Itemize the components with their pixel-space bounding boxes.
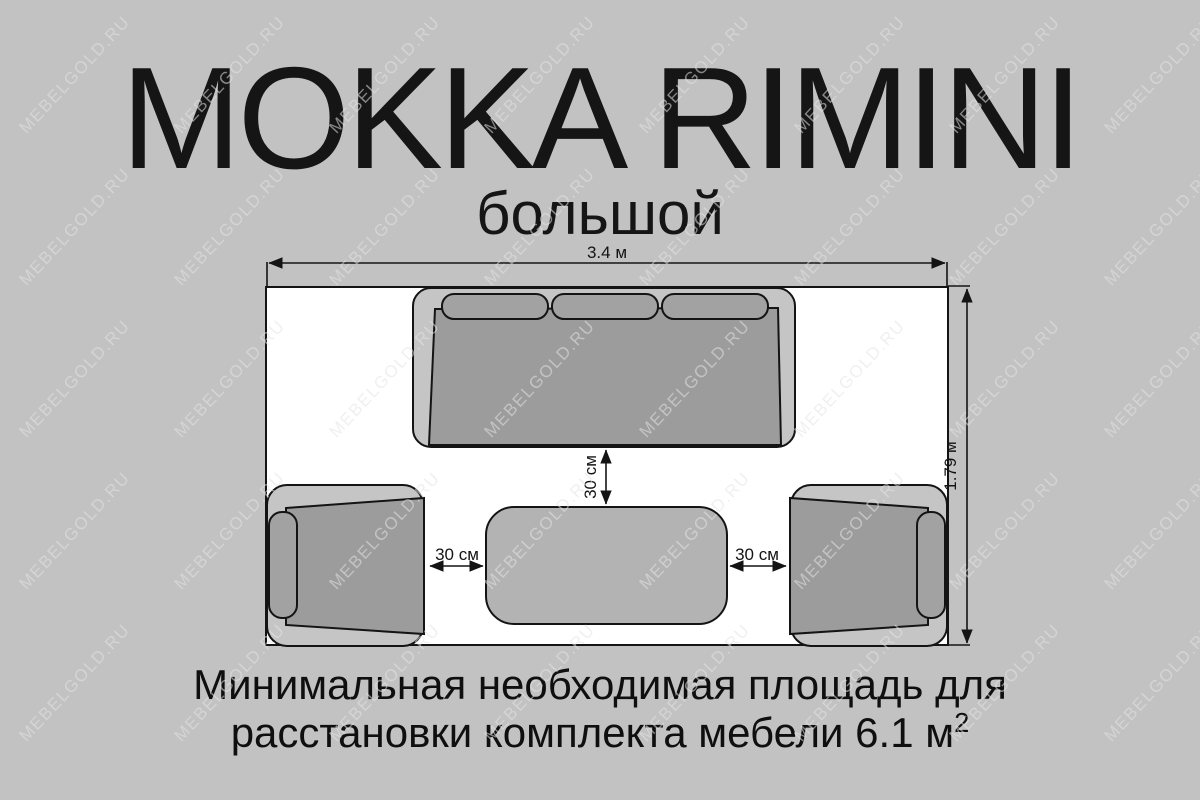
armchair-right-cushion	[917, 512, 945, 618]
left-gap-dimension: 30 см	[430, 545, 483, 566]
right-gap-dimension: 30 см	[730, 545, 786, 566]
sofa-seat	[429, 308, 781, 445]
sofa	[413, 288, 795, 447]
minimum-area-note-line2-text: расстановки комплекта мебели 6.1 м	[231, 709, 954, 756]
left-gap-label: 30 см	[435, 545, 479, 564]
sofa-table-gap-label: 30 см	[581, 455, 600, 499]
armchair-left-cushion	[269, 512, 297, 618]
armchair-right-seat	[790, 498, 928, 634]
minimum-area-note-line2: расстановки комплекта мебели 6.1 м2	[0, 709, 1200, 757]
minimum-area-note-line1: Минимальная необходимая площадь для	[0, 661, 1200, 709]
sofa-cushion-left	[442, 294, 548, 319]
armchair-left	[267, 485, 424, 646]
minimum-area-note: Минимальная необходимая площадь для расс…	[0, 661, 1200, 758]
coffee-table	[486, 507, 727, 624]
infographic: MOKKA RIMINI большой	[0, 0, 1200, 800]
armchair-left-seat	[286, 498, 424, 634]
right-gap-label: 30 см	[735, 545, 779, 564]
sofa-cushion-right	[662, 294, 768, 319]
minimum-area-note-superscript: 2	[954, 707, 969, 738]
height-dimension-label: 1.79 м	[941, 441, 960, 491]
width-dimension: 3.4 м	[267, 243, 947, 287]
width-dimension-label: 3.4 м	[587, 243, 627, 262]
sofa-cushion-middle	[552, 294, 658, 319]
armchair-right	[790, 485, 947, 646]
